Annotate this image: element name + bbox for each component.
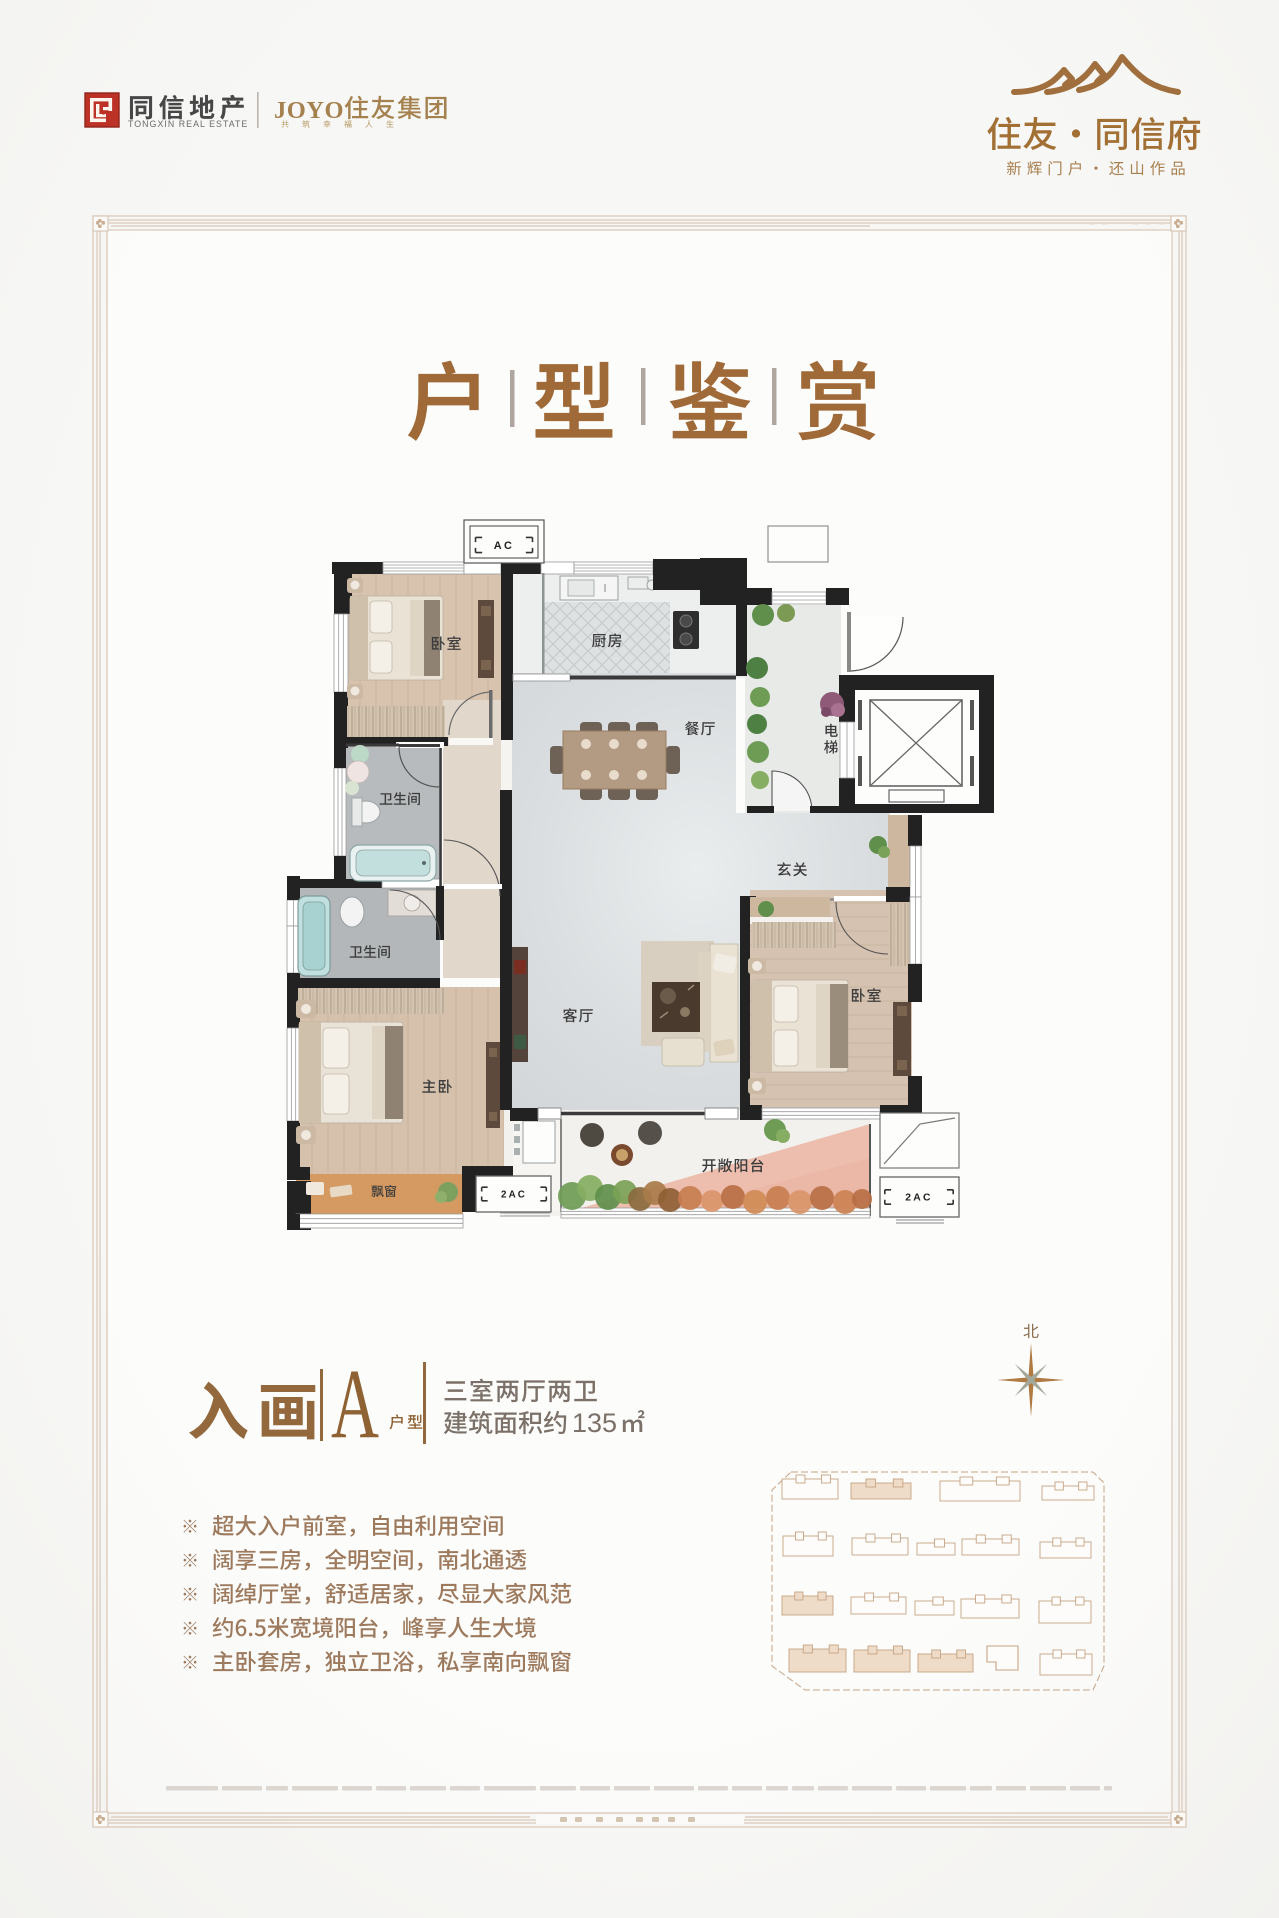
svg-text:TONGXIN REAL ESTATE: TONGXIN REAL ESTATE (128, 119, 248, 129)
svg-text:2AC: 2AC (905, 1193, 932, 1204)
svg-text:A: A (331, 1348, 379, 1459)
svg-text:135: 135 (572, 1408, 617, 1438)
svg-text:JOYO: JOYO (274, 97, 344, 124)
svg-text:2AC: 2AC (501, 1189, 527, 1200)
svg-text:AC: AC (494, 540, 515, 552)
